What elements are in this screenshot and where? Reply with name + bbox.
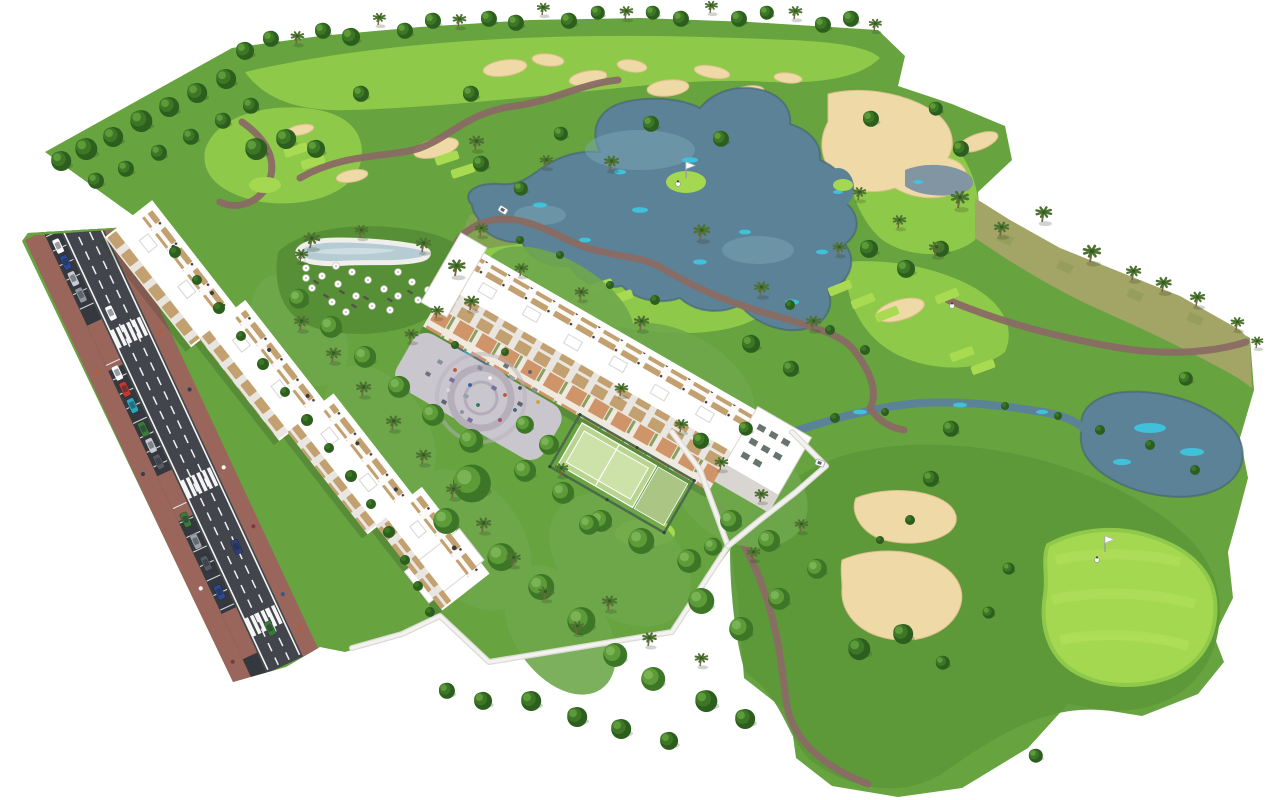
palm-shadow — [797, 531, 808, 535]
umbrella — [365, 277, 372, 284]
tree-canopy — [954, 143, 960, 149]
palm-crown — [620, 386, 623, 389]
palm-shadow — [479, 531, 491, 535]
palm-crown — [1196, 295, 1199, 298]
tree-canopy — [944, 423, 950, 429]
palm-crown — [310, 236, 314, 240]
tree-canopy — [844, 13, 850, 19]
tree-canopy — [509, 17, 515, 23]
umbrella-pole — [305, 277, 307, 279]
umbrella-pole — [335, 265, 337, 267]
bush-highlight — [1055, 413, 1059, 417]
person — [446, 388, 450, 392]
umbrella — [395, 269, 402, 276]
tree-canopy — [570, 611, 581, 622]
palm-shadow — [707, 12, 717, 16]
palm-crown — [576, 624, 579, 627]
palm-shadow — [697, 239, 710, 244]
palm-shadow — [509, 565, 520, 569]
person — [513, 408, 517, 412]
tree-canopy — [436, 512, 446, 522]
palm-shadow — [1086, 261, 1100, 266]
render-stage — [0, 0, 1280, 800]
palm-shadow — [419, 463, 431, 467]
tree-canopy — [744, 337, 751, 344]
bush — [192, 275, 202, 285]
tree-canopy — [694, 435, 700, 441]
tree-canopy — [238, 44, 245, 51]
bush-highlight — [831, 414, 836, 419]
tree-canopy — [555, 485, 563, 493]
tree-canopy — [464, 88, 470, 94]
palm-shadow — [677, 431, 688, 435]
palm-crown — [452, 487, 455, 490]
palm-shadow — [573, 633, 584, 637]
person — [498, 418, 502, 422]
palm-crown — [362, 385, 365, 388]
palm-shadow — [749, 559, 760, 563]
bush — [830, 413, 840, 423]
umbrella — [329, 299, 336, 306]
tree-canopy — [937, 657, 943, 663]
bush — [301, 414, 313, 426]
tree-canopy — [518, 418, 525, 425]
palm-crown — [720, 460, 723, 463]
tree-canopy — [462, 432, 471, 441]
palm-crown — [300, 252, 303, 255]
palm-crown — [542, 6, 545, 9]
bush-highlight — [861, 346, 866, 351]
palm-crown — [794, 9, 797, 12]
palm-crown — [422, 453, 425, 456]
umbrella — [387, 307, 394, 314]
palm-shadow — [637, 329, 649, 333]
bush — [881, 408, 889, 416]
tree-canopy — [761, 533, 769, 541]
tree-canopy — [184, 131, 190, 137]
palm-crown — [545, 158, 548, 161]
person — [488, 376, 492, 380]
palm-shadow — [542, 167, 553, 171]
tree-canopy — [691, 592, 701, 602]
tree-canopy — [732, 620, 741, 629]
tree-canopy — [862, 242, 869, 249]
tree-canopy — [344, 30, 351, 37]
umbrella-pole — [351, 271, 353, 273]
umbrella — [353, 293, 360, 300]
palm-crown — [300, 319, 303, 322]
palm-crown — [838, 245, 841, 248]
umbrella-pole — [337, 283, 339, 285]
bush-highlight — [214, 303, 220, 309]
tree-canopy — [864, 113, 870, 119]
tree-canopy — [706, 540, 713, 547]
person — [453, 368, 457, 372]
bush-highlight — [302, 415, 308, 421]
umbrella-pole — [331, 301, 333, 303]
bush — [556, 251, 564, 259]
umbrella-pole — [311, 287, 313, 289]
umbrella-pole — [417, 299, 419, 301]
palm-shadow — [835, 254, 846, 258]
palm-shadow — [477, 235, 488, 239]
palm-crown — [520, 266, 523, 269]
palm-crown — [760, 492, 763, 495]
tree-canopy — [119, 163, 125, 169]
tree-canopy — [161, 99, 169, 107]
person — [518, 386, 522, 390]
bush — [860, 345, 870, 355]
palm-crown — [544, 590, 547, 593]
tree-canopy — [809, 562, 817, 570]
umbrella — [309, 285, 316, 292]
umbrella — [319, 273, 326, 280]
bush — [905, 515, 915, 525]
tree-canopy — [662, 734, 669, 741]
bush — [1095, 425, 1105, 435]
bush — [400, 555, 410, 565]
tree-canopy — [899, 262, 906, 269]
palm-crown — [470, 299, 473, 302]
palm-shadow — [449, 497, 461, 501]
bush-highlight — [237, 332, 242, 337]
bush-highlight — [607, 282, 611, 286]
palm-shadow — [717, 469, 728, 473]
palm-shadow — [467, 309, 479, 313]
tree-canopy — [732, 13, 738, 19]
bush — [785, 300, 795, 310]
palm-shadow — [1233, 329, 1244, 333]
tree-canopy — [644, 118, 650, 124]
palm-shadow — [1193, 305, 1205, 309]
bush — [257, 358, 269, 370]
tree-canopy — [309, 142, 316, 149]
palm-shadow — [557, 475, 568, 479]
palm-shadow — [895, 227, 906, 231]
palm-shadow — [375, 24, 385, 28]
bush-highlight — [384, 527, 390, 533]
tree-canopy — [895, 626, 903, 634]
person — [503, 393, 507, 397]
tree-canopy — [930, 103, 936, 109]
palm-shadow — [1159, 291, 1172, 296]
bush-highlight — [882, 409, 886, 413]
tree-canopy — [77, 141, 86, 150]
tree-canopy — [515, 183, 521, 189]
umbrella-pole — [397, 295, 399, 297]
bush-highlight — [281, 388, 286, 393]
palm-crown — [1256, 340, 1259, 343]
palm-crown — [422, 241, 425, 244]
palm-shadow — [791, 18, 802, 22]
palm-crown — [1042, 210, 1046, 214]
palm-shadow — [389, 429, 401, 433]
tree-canopy — [216, 115, 222, 121]
bush-highlight — [426, 608, 431, 613]
tree-canopy — [850, 641, 859, 650]
tree-canopy — [784, 363, 790, 369]
umbrella-pole — [397, 271, 399, 273]
bush-highlight — [786, 301, 791, 306]
palm-shadow — [407, 341, 418, 345]
umbrella — [409, 279, 416, 286]
tree-canopy — [391, 379, 399, 387]
palm-crown — [1090, 249, 1094, 253]
bush-highlight — [502, 349, 506, 353]
palm-crown — [858, 190, 861, 193]
tree-canopy — [105, 129, 113, 137]
palm-shadow — [359, 395, 371, 399]
umbrella-pole — [345, 311, 347, 313]
bush — [213, 302, 225, 314]
umbrella-pole — [389, 309, 391, 311]
palm-crown — [1162, 281, 1165, 284]
palm-shadow — [757, 295, 769, 299]
palm-crown — [480, 226, 483, 229]
bush — [451, 341, 459, 349]
tree-canopy — [723, 513, 731, 521]
palm-crown — [648, 636, 651, 639]
palm-crown — [512, 556, 515, 559]
bush-highlight — [367, 500, 372, 505]
tree-canopy — [592, 7, 598, 13]
umbrella — [395, 293, 402, 300]
palm-shadow — [605, 609, 617, 613]
palm-crown — [710, 4, 713, 7]
bush — [516, 236, 524, 244]
tree-canopy — [425, 407, 433, 415]
palm-shadow — [809, 329, 821, 333]
palm-crown — [1132, 269, 1135, 272]
palm-crown — [475, 139, 478, 142]
tree-canopy — [278, 131, 286, 139]
palm-crown — [360, 228, 363, 231]
bush-highlight — [1146, 441, 1151, 446]
bush-highlight — [826, 326, 831, 331]
bush — [606, 281, 614, 289]
tree-canopy — [674, 13, 680, 19]
umbrella-pole — [355, 295, 357, 297]
bush — [1054, 412, 1062, 420]
palm-shadow — [455, 26, 466, 30]
tree-canopy — [1004, 564, 1009, 569]
palm-crown — [1236, 320, 1239, 323]
person — [528, 370, 532, 374]
umbrella-pole — [371, 305, 373, 307]
tree-canopy — [247, 141, 256, 150]
bush — [425, 607, 435, 617]
bush — [280, 387, 290, 397]
tree-canopy — [490, 547, 501, 558]
palm-crown — [752, 550, 755, 553]
palm-shadow — [645, 645, 656, 649]
person — [536, 400, 540, 404]
palm-shadow — [1254, 347, 1264, 351]
person — [460, 410, 464, 414]
palm-crown — [392, 419, 395, 422]
palm-crown — [608, 599, 611, 602]
palm-shadow — [517, 275, 528, 279]
bush — [1001, 402, 1009, 410]
tree-canopy — [555, 128, 561, 134]
tree-canopy — [740, 423, 746, 429]
bush — [501, 348, 509, 356]
bush-highlight — [414, 582, 419, 587]
tree-canopy — [541, 438, 549, 446]
tree-canopy — [152, 147, 158, 153]
palm-shadow — [932, 255, 944, 259]
palm-shadow — [997, 235, 1009, 239]
tree-canopy — [264, 33, 270, 39]
tree-canopy — [569, 709, 577, 717]
palm-crown — [812, 319, 815, 322]
bush-highlight — [1096, 426, 1101, 431]
palm-crown — [378, 16, 381, 19]
palm-crown — [700, 228, 704, 232]
tree-canopy — [517, 463, 525, 471]
tree-canopy — [323, 319, 331, 327]
palm-crown — [458, 17, 461, 20]
tree-canopy — [1030, 750, 1036, 756]
tree-canopy — [132, 113, 141, 122]
umbrella-pole — [383, 288, 385, 290]
bush-highlight — [517, 237, 521, 241]
palm-shadow — [307, 247, 320, 252]
bush-highlight — [193, 276, 198, 281]
bush-highlight — [325, 444, 330, 449]
tree-canopy — [606, 646, 615, 655]
bush-highlight — [401, 556, 406, 561]
palm-crown — [958, 195, 962, 199]
tree-canopy — [697, 693, 706, 702]
bush-highlight — [452, 342, 456, 346]
palm-shadow — [433, 317, 443, 321]
bush — [383, 526, 395, 538]
tree-canopy — [316, 25, 322, 31]
golfer-head — [1096, 556, 1098, 558]
palm-crown — [580, 290, 583, 293]
bush — [825, 325, 835, 335]
palm-crown — [410, 332, 413, 335]
bush-highlight — [557, 252, 561, 256]
tree-canopy — [680, 552, 689, 561]
umbrella — [335, 281, 342, 288]
palm-shadow — [697, 665, 708, 669]
tree-canopy — [1180, 373, 1186, 379]
bush — [324, 443, 334, 453]
palm-shadow — [472, 149, 484, 153]
tree-canopy — [816, 19, 822, 25]
bush-highlight — [906, 516, 911, 521]
palm-shadow — [577, 299, 588, 303]
palm-shadow — [452, 275, 466, 280]
palm-shadow — [297, 329, 309, 333]
tree-canopy — [218, 71, 226, 79]
tree-canopy — [457, 470, 471, 484]
tree-canopy — [631, 532, 641, 542]
bush-highlight — [1002, 403, 1006, 407]
tree-canopy — [613, 721, 621, 729]
tree-canopy — [426, 15, 432, 21]
tree-canopy — [924, 473, 930, 479]
bush-highlight — [170, 247, 176, 253]
palm-crown — [680, 422, 683, 425]
palm-shadow — [357, 237, 368, 241]
bush — [650, 295, 660, 305]
palm-crown — [332, 351, 335, 354]
tree-canopy — [476, 694, 483, 701]
palm-shadow — [757, 501, 768, 505]
tree-canopy — [53, 153, 61, 161]
umbrella-pole — [411, 281, 413, 283]
bush-highlight — [651, 296, 656, 301]
tree-canopy — [644, 670, 653, 679]
bush — [876, 536, 884, 544]
tree-canopy — [647, 7, 653, 13]
tree-canopy — [357, 349, 365, 357]
umbrella — [343, 309, 350, 316]
palm-shadow — [297, 261, 308, 265]
tree-canopy — [89, 175, 95, 181]
bush — [169, 246, 181, 258]
palm-shadow — [539, 14, 549, 18]
tree-canopy — [244, 100, 250, 106]
tree-canopy — [714, 133, 720, 139]
palm-crown — [874, 22, 877, 25]
palm-crown — [760, 285, 763, 288]
palm-shadow — [855, 199, 866, 203]
umbrella — [303, 265, 310, 272]
umbrella-pole — [321, 275, 323, 277]
umbrella — [415, 297, 422, 304]
palm-shadow — [622, 18, 633, 22]
palm-shadow — [1129, 279, 1141, 283]
umbrella — [369, 303, 376, 310]
golfer-head — [677, 180, 679, 182]
tree-canopy — [474, 158, 480, 164]
golfer-head — [951, 302, 953, 304]
bush — [345, 470, 357, 482]
palm-crown — [436, 309, 439, 312]
palm-crown — [455, 264, 459, 268]
bush — [1190, 465, 1200, 475]
palm-crown — [898, 218, 901, 221]
palm-crown — [1000, 225, 1003, 228]
scene-canvas — [0, 0, 1280, 800]
palm-shadow — [607, 169, 619, 173]
palm-crown — [482, 521, 485, 524]
person — [476, 403, 480, 407]
palm-shadow — [329, 361, 341, 365]
tree-canopy — [189, 85, 197, 93]
tree-canopy — [398, 25, 404, 31]
tree-canopy — [523, 693, 531, 701]
tree-canopy — [440, 685, 446, 691]
palm-crown — [296, 34, 299, 37]
bush-highlight — [258, 359, 264, 365]
palm-shadow — [954, 207, 968, 212]
palm-shadow — [617, 395, 628, 399]
bush — [236, 331, 246, 341]
tree-canopy — [354, 88, 360, 94]
bush — [1145, 440, 1155, 450]
tree-canopy — [291, 292, 299, 300]
tree-canopy — [531, 578, 541, 588]
palm-crown — [610, 159, 613, 162]
palm-shadow — [293, 43, 304, 47]
palm-crown — [560, 466, 563, 469]
tree-canopy — [737, 711, 745, 719]
